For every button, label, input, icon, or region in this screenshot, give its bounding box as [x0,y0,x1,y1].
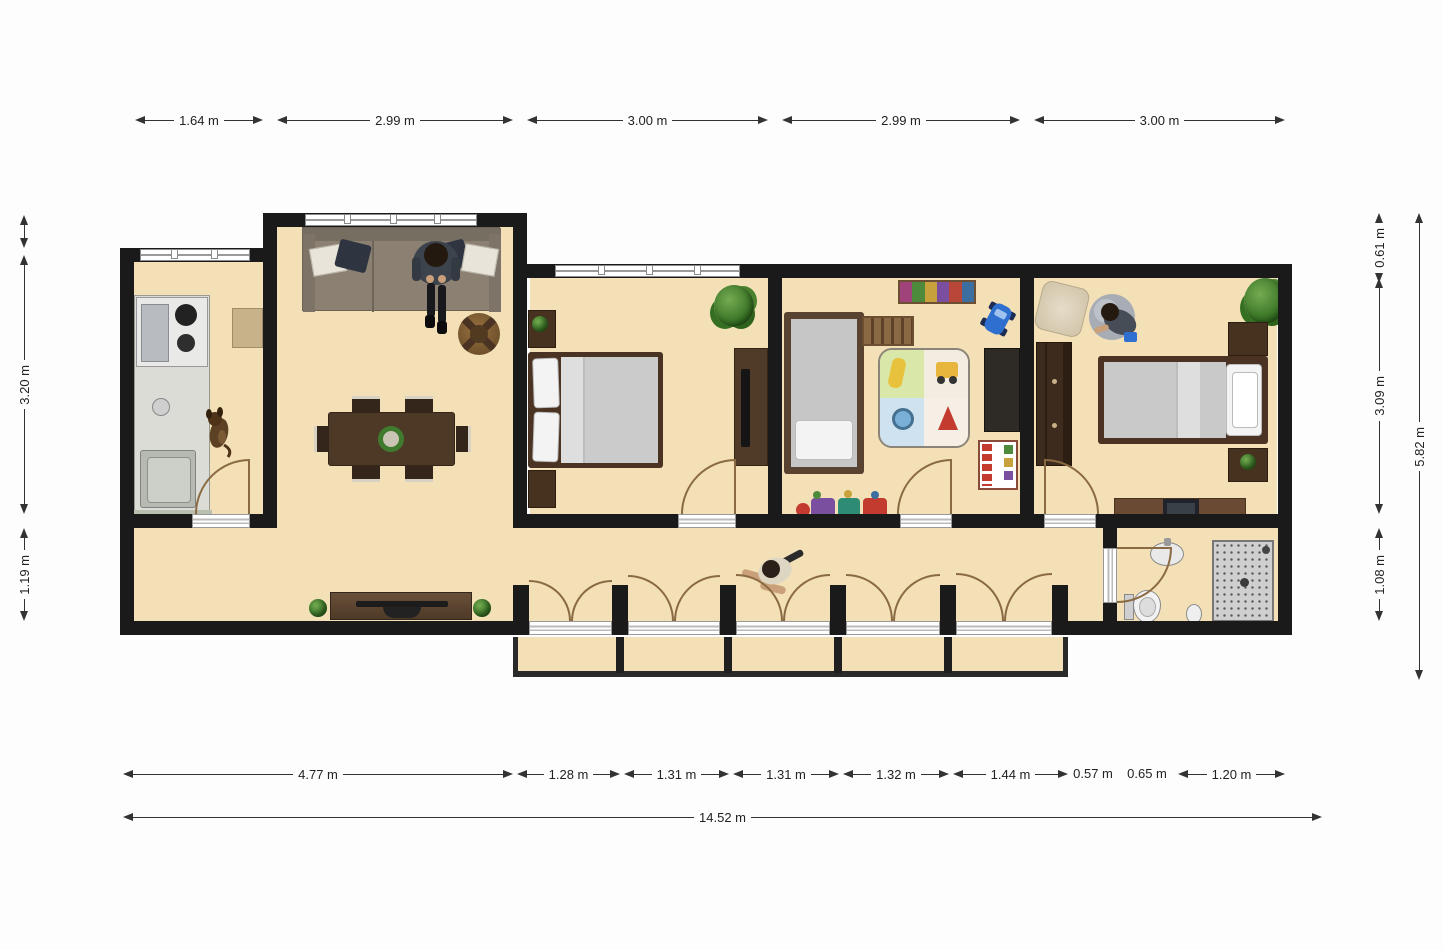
kitchen-side-table [232,308,263,348]
wall [513,514,678,528]
dim-top-1: 1.64 m [135,112,263,128]
dim-label: 1.31 m [761,767,811,782]
plant [309,599,327,617]
dim-label: 1.20 m [1207,767,1257,782]
dim-label: 1.31 m [652,767,702,782]
dining-chair [352,465,380,482]
wall [768,264,1034,278]
dim-bottom-6: 1.44 m [953,766,1068,782]
kids-door-threshold [900,514,952,528]
bathroom-door-leaf [1117,547,1172,549]
bathroom-door-threshold [1103,548,1117,603]
tv-sideboard [330,592,472,620]
dining-chair [314,426,329,452]
dim-top-4: 2.99 m [782,112,1020,128]
wall [120,248,134,635]
door-jamb [1052,585,1068,635]
nightstand [1228,322,1268,356]
dim-left-1: 3.20 m [16,255,32,514]
dim-label: 2.99 m [370,113,420,128]
kids-wardrobe [984,348,1020,432]
bed-ladder [862,316,914,346]
double-bed [528,352,663,468]
kids-shelf [978,440,1018,490]
living-room-window [305,214,477,226]
dim-bottom-2: 1.28 m [517,766,620,782]
nightstand [528,470,556,508]
dim-bottom-total: 14.52 m [123,809,1322,825]
kids-door-leaf [950,459,952,514]
dining-chair [405,465,433,482]
dim-label: 14.52 m [694,810,751,825]
kitchen-window [140,249,250,261]
dim-label: 1.08 m [1372,550,1387,600]
wall [1278,264,1292,635]
dim-bottom-7: 0.57 m [1068,766,1118,781]
dim-right-total: 5.82 m [1411,213,1427,680]
balcony-door-threshold [529,621,612,635]
sofa [302,227,500,311]
dim-label: 4.77 m [293,767,343,782]
dim-right-1: 0.61 m [1371,213,1387,271]
dim-label: 3.00 m [1135,113,1185,128]
tv-dresser [734,348,768,466]
pillow-floral [461,243,499,276]
dim-bottom-8: 0.65 m [1120,766,1174,781]
stove [136,297,208,367]
kitchen-door-threshold [192,514,250,528]
dim-left-2: 1.19 m [16,528,32,621]
balcony-door-threshold [956,621,1052,635]
dim-label: 5.82 m [1412,422,1427,472]
dim-bottom-9: 1.20 m [1178,766,1285,782]
wall [1020,264,1292,278]
balcony-door-threshold [736,621,830,635]
door-jamb [720,585,736,635]
dim-bottom-4: 1.31 m [733,766,839,782]
dim-top-3: 3.00 m [527,112,768,128]
kids-bed [784,312,864,474]
kitchen-faucet [152,398,170,416]
bedroom2-door-leaf [1044,459,1046,514]
dining-chair [405,396,433,413]
dog [202,406,236,458]
wall [1096,514,1292,528]
dim-label: 3.00 m [623,113,673,128]
wall [263,213,277,528]
bedroom1-door-leaf [734,459,736,514]
kitchen-sink [140,450,196,508]
toy-car [980,300,1016,338]
plant [473,599,491,617]
bedroom2-door-threshold [1044,514,1096,528]
double-bed [1098,356,1268,444]
dim-top-2: 2.99 m [277,112,513,128]
balcony-partition [724,637,732,673]
toy-shelf [898,280,976,304]
balcony-edge-right [1063,637,1068,677]
wall [1052,621,1292,635]
bedroom1-door-threshold [678,514,736,528]
door-jamb [830,585,846,635]
dim-label: 3.20 m [17,360,32,410]
dim-bottom-3: 1.31 m [624,766,729,782]
bedroom1-window [555,265,740,277]
balcony-partition [616,637,624,673]
dim-bottom-5: 1.32 m [843,766,949,782]
dim-top-5: 3.00 m [1034,112,1285,128]
kitchen-door-leaf [248,459,250,514]
side-table [458,313,500,355]
balcony-edge-bottom [513,671,1068,677]
door-jamb [612,585,628,635]
wall [768,264,782,528]
play-mat [878,348,970,448]
wall [1103,514,1117,548]
dim-right-3: 1.08 m [1371,528,1387,621]
mat-lion [892,408,914,430]
plant-small [1240,454,1256,470]
dining-chair [456,426,471,452]
plant-large [714,285,754,327]
floor-plan-canvas: 1.64 m 2.99 m 3.00 m 2.99 m 3.00 m 3.20 … [0,0,1443,950]
dim-label: 0.61 m [1372,223,1387,273]
dim-label: 3.09 m [1372,371,1387,421]
wardrobe [1036,342,1072,466]
tv-stand [383,607,421,618]
dim-label: 1.19 m [17,550,32,600]
balcony-door-threshold [846,621,940,635]
shower [1212,540,1274,622]
person-on-sofa [408,233,464,335]
plant-small [532,316,548,332]
dim-label: 1.44 m [986,767,1036,782]
balcony-edge-left [513,637,518,677]
wall [513,213,527,528]
dim-bottom-1: 4.77 m [123,766,513,782]
balcony-partition [834,637,842,673]
wall [120,621,529,635]
dim-right-2: 3.09 m [1371,278,1387,514]
dim-label: 1.64 m [174,113,224,128]
mat-clown [938,406,958,430]
balcony-door-threshold [628,621,720,635]
door-jamb [513,585,529,635]
wall [768,514,900,528]
dim-label: 2.99 m [876,113,926,128]
table-centerpiece [378,426,404,452]
dim-label: 1.28 m [544,767,594,782]
balcony-partition [944,637,952,673]
wall [1103,603,1117,635]
tv [741,369,750,447]
dim-left-stub [16,215,32,248]
door-jamb [940,585,956,635]
dim-label: 1.32 m [871,767,921,782]
wall [1020,264,1034,528]
person-on-beanbag [1082,290,1148,350]
dining-chair [352,396,380,413]
